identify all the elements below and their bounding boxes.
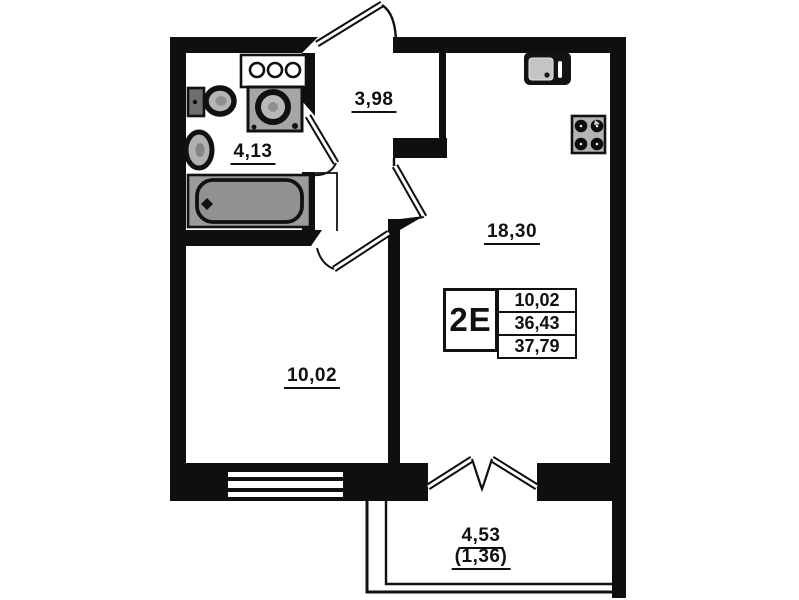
toilet-icon — [188, 88, 234, 116]
kitchen-sink-icon — [524, 52, 571, 85]
washer-control-panel-icon — [241, 55, 306, 87]
unit-total-area: 37,79 — [497, 334, 577, 359]
floor-plan-drawing — [0, 0, 799, 600]
hallway-area-value: 3,98 — [352, 90, 397, 113]
walls — [170, 37, 626, 501]
unit-living-area: 10,02 — [497, 288, 577, 313]
floor-plan: 4,13 3,98 18,30 10,02 4,53 (1,36) 2Е 10,… — [0, 0, 799, 600]
balcony-reduced-area-value: (1,36) — [452, 547, 511, 570]
entry-door — [317, 4, 396, 44]
room-label-room: 10,02 — [284, 366, 340, 389]
washing-machine-icon — [248, 87, 302, 131]
room-area-value: 10,02 — [284, 366, 340, 389]
unit-area-values: 10,02 36,43 37,79 — [497, 288, 577, 352]
unit-area-without-balcony: 36,43 — [497, 311, 577, 336]
window-room — [228, 463, 343, 501]
wall-top-left — [170, 37, 318, 53]
room-label-hallway: 3,98 — [352, 90, 397, 113]
wall-right — [610, 37, 626, 501]
stove-icon — [572, 116, 605, 153]
wall-kitchen-stub — [393, 138, 447, 158]
room-door — [317, 233, 389, 269]
room-label-bathroom: 4,13 — [231, 142, 276, 165]
bathtub-icon — [188, 175, 310, 227]
kitchen-door — [394, 158, 424, 220]
room-label-kitchen-living: 18,30 — [484, 222, 540, 245]
room-label-balcony-reduced: (1,36) — [452, 547, 511, 570]
wall-bottom-b — [343, 463, 428, 501]
wall-top-right — [393, 37, 626, 53]
wall-bottom-c — [537, 463, 626, 501]
wall-room-top — [170, 230, 322, 246]
kitchen-fixtures — [524, 52, 605, 153]
balcony-door — [428, 459, 537, 489]
bathroom-area-value: 4,13 — [231, 142, 276, 165]
wall-kitchen-partition — [439, 52, 446, 138]
kitchen-living-area-value: 18,30 — [484, 222, 540, 245]
wash-basin-icon — [186, 132, 212, 168]
wall-left — [170, 37, 186, 501]
wall-divider — [388, 219, 400, 463]
balcony-wall-right — [612, 501, 626, 598]
unit-type-cell: 2Е — [443, 288, 498, 352]
doors — [308, 4, 537, 489]
unit-info-table: 2Е 10,02 36,43 37,79 — [443, 288, 577, 352]
wall-bottom-a — [170, 463, 228, 501]
